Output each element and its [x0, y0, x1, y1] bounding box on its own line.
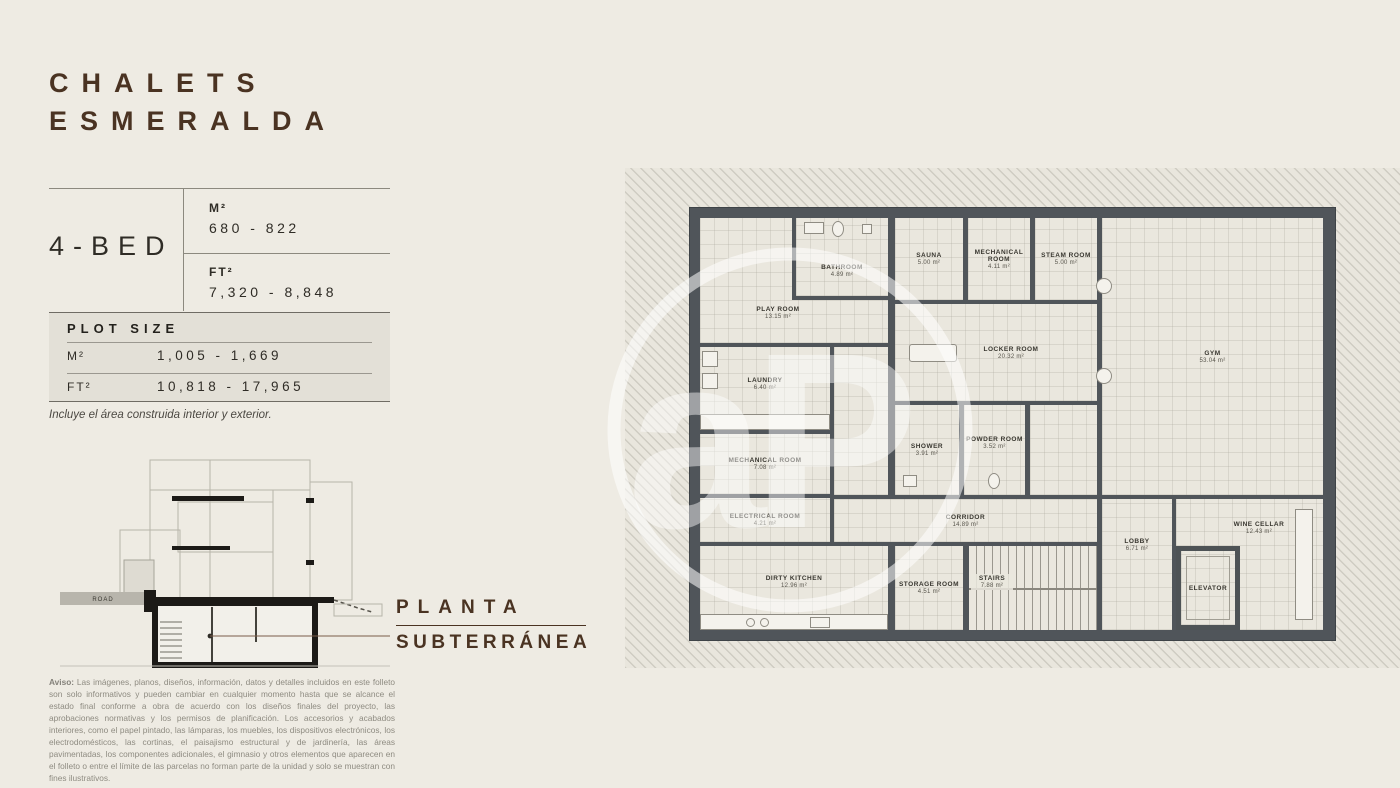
room-stairs: STAIRS 7.88 m² — [969, 546, 1097, 630]
table-divider-vertical — [183, 189, 184, 311]
disclaimer-text: Las imágenes, planos, diseños, informaci… — [49, 677, 395, 783]
legal-disclaimer: Aviso: Las imágenes, planos, diseños, in… — [49, 676, 395, 784]
plot-size-note: Incluye el área construida interior y ex… — [49, 409, 272, 421]
m2-label: M² — [209, 201, 389, 215]
plot-size-row-m2: M² 1,005 - 1,669 — [67, 343, 372, 367]
room-label: STAIRS — [973, 575, 1011, 582]
disclaimer-prefix: Aviso: — [49, 677, 74, 687]
toilet-fixture — [988, 473, 1000, 489]
room-electrical: ELECTRICAL ROOM 4.21 m² — [700, 498, 830, 542]
section-svg: ROAD — [60, 442, 390, 668]
room-lobby: LOBBY 6.71 m² — [1102, 499, 1172, 630]
room-label: GYM — [1199, 350, 1225, 357]
room-label: ELEVATOR — [1189, 585, 1227, 592]
room-sauna: SAUNA 5.00 m² — [895, 218, 963, 300]
room-label: STEAM ROOM — [1041, 252, 1091, 259]
room-area: 7.08 m² — [728, 465, 801, 471]
room-area: 7.88 m² — [973, 583, 1011, 589]
building-section-drawing: ROAD — [60, 442, 390, 668]
burner-fixture — [746, 618, 755, 627]
room-label: PLAY ROOM — [718, 306, 838, 313]
room-label: ELECTRICAL ROOM — [730, 513, 801, 520]
room-gym: GYM 53.04 m² — [1102, 218, 1323, 495]
room-area: 4.51 m² — [899, 589, 959, 595]
plot-m2-value: 1,005 - 1,669 — [157, 348, 282, 363]
room-label: STORAGE ROOM — [899, 581, 959, 588]
room-corridor: CORRIDOR 14.89 m² — [834, 499, 1097, 542]
floor-name-line-2: SUBTERRÁNEA — [396, 632, 591, 654]
room-label: MECHANICAL ROOM — [968, 249, 1030, 263]
column-fixture — [1096, 368, 1112, 384]
room-mechanical-top: MECHANICAL ROOM 4.11 m² — [968, 218, 1030, 300]
room-area: 4.21 m² — [730, 521, 801, 527]
ft2-value: 7,320 - 8,848 — [209, 284, 389, 300]
room-label: DIRTY KITCHEN — [766, 575, 823, 582]
room-area: 12.96 m² — [766, 583, 823, 589]
room-label: LAUNDRY — [747, 377, 782, 384]
room-area: 12.43 m² — [1214, 529, 1304, 535]
room-label: MECHANICAL ROOM — [728, 457, 801, 464]
column-fixture — [1096, 278, 1112, 294]
room-powder-room: POWDER ROOM 3.52 m² — [964, 405, 1025, 495]
room-area: 5.00 m² — [916, 260, 942, 266]
plot-ft2-value: 10,818 - 17,965 — [157, 379, 304, 394]
room-area: 20.32 m² — [984, 354, 1039, 360]
room-area: 13.15 m² — [718, 314, 838, 320]
built-area-ft2-cell: FT² 7,320 - 8,848 — [209, 265, 389, 300]
room-steam-room: STEAM ROOM 5.00 m² — [1035, 218, 1097, 300]
room-area: 3.52 m² — [966, 444, 1023, 450]
washer-fixture — [702, 351, 718, 367]
room-label: CORRIDOR — [946, 514, 985, 521]
shower-head-fixture — [862, 224, 872, 234]
road-label: ROAD — [92, 597, 113, 603]
bedrooms-label: 4-BED — [49, 231, 174, 262]
title-line-2: ESMERALDA — [49, 102, 337, 140]
sink-fixture — [810, 617, 830, 628]
plot-size-box: PLOT SIZE M² 1,005 - 1,669 FT² 10,818 - … — [49, 312, 390, 402]
room-mechanical-lower: MECHANICAL ROOM 7.08 m² — [700, 434, 830, 494]
unit-spec-table: 4-BED M² 680 - 822 FT² 7,320 - 8,848 — [49, 188, 390, 310]
floor-name-line-1: PLANTA — [396, 597, 591, 619]
table-divider-horizontal — [183, 253, 390, 254]
counter-fixture — [700, 414, 830, 430]
plot-ft2-label: FT² — [67, 380, 157, 394]
title-line-1: CHALETS — [49, 64, 337, 102]
room-area: 6.40 m² — [747, 385, 782, 391]
bench-fixture — [909, 344, 957, 362]
m2-value: 680 - 822 — [209, 220, 389, 236]
page-title: CHALETS ESMERALDA — [49, 64, 337, 140]
room-label: LOBBY — [1124, 538, 1149, 545]
sink-fixture — [804, 222, 824, 234]
toilet-fixture — [832, 221, 844, 237]
floor-name-rule — [396, 625, 586, 626]
dryer-fixture — [702, 373, 718, 389]
room-label: SAUNA — [916, 252, 942, 259]
room-area: 53.04 m² — [1199, 358, 1225, 364]
plot-m2-label: M² — [67, 349, 157, 363]
hall-floor — [834, 347, 888, 495]
room-laundry: LAUNDRY 6.40 m² — [700, 347, 830, 430]
room-dirty-kitchen: DIRTY KITCHEN 12.96 m² — [700, 546, 888, 630]
room-label: BATHROOM — [821, 264, 863, 271]
room-area: 3.91 m² — [911, 451, 943, 457]
drain-fixture — [903, 475, 917, 487]
plot-size-row-ft2: FT² 10,818 - 17,965 — [67, 374, 372, 398]
room-label: POWDER ROOM — [966, 436, 1023, 443]
floor-plan-body: PLAY ROOM 13.15 m² BATHROOM 4.89 m² SAUN… — [690, 208, 1335, 640]
room-storage: STORAGE ROOM 4.51 m² — [895, 546, 963, 630]
room-area: 4.89 m² — [821, 272, 863, 278]
floor-name-label: PLANTA SUBTERRÁNEA — [396, 597, 591, 654]
room-label: LOCKER ROOM — [984, 346, 1039, 353]
brochure-page: CHALETS ESMERALDA 4-BED M² 680 - 822 FT²… — [0, 0, 1400, 788]
room-shower: SHOWER 3.91 m² — [895, 405, 959, 495]
room-area: 4.11 m² — [968, 264, 1030, 270]
room-label: WINE CELLAR — [1214, 521, 1304, 528]
room-area: 6.71 m² — [1124, 546, 1149, 552]
room-bathroom: BATHROOM 4.89 m² — [792, 218, 888, 300]
room-label: SHOWER — [911, 443, 943, 450]
burner-fixture — [760, 618, 769, 627]
room-elevator: ELEVATOR — [1176, 546, 1240, 630]
kitchen-counter-fixture — [700, 614, 888, 630]
built-area-m2-cell: M² 680 - 822 — [209, 201, 389, 236]
vestibule-floor — [1030, 405, 1097, 495]
room-area: 5.00 m² — [1041, 260, 1091, 266]
room-locker-room: LOCKER ROOM 20.32 m² — [895, 304, 1097, 401]
room-area: 14.89 m² — [946, 522, 985, 528]
plot-size-header: PLOT SIZE — [67, 321, 372, 336]
ft2-label: FT² — [209, 265, 389, 279]
floor-plan-area: PLAY ROOM 13.15 m² BATHROOM 4.89 m² SAUN… — [625, 168, 1400, 668]
